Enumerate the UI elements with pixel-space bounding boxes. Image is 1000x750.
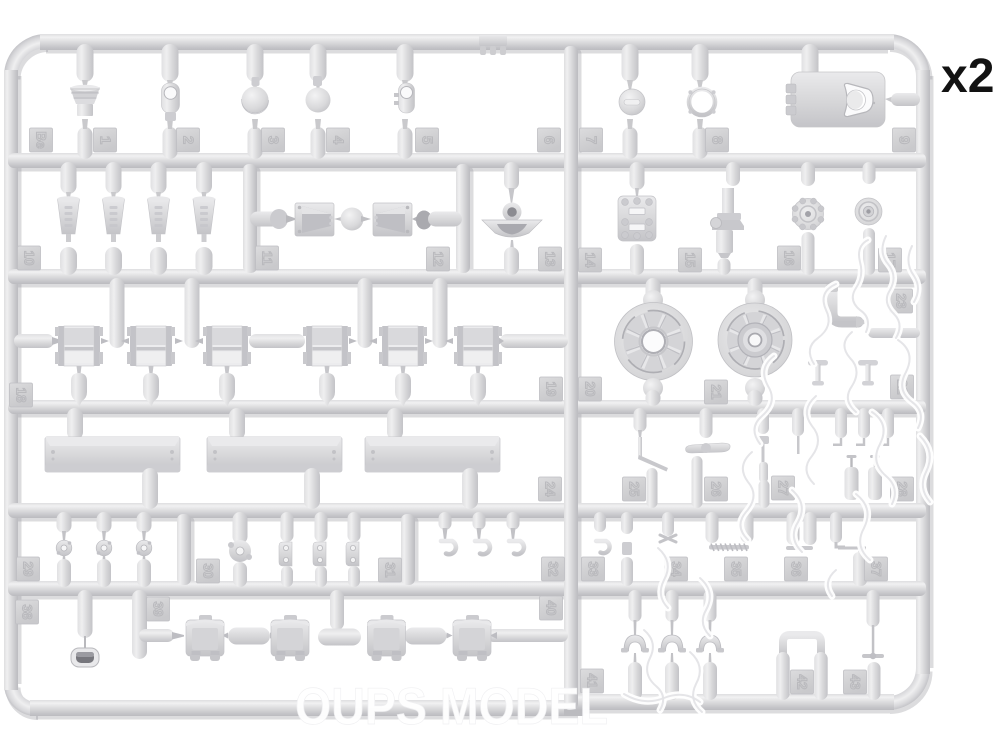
svg-text:6: 6	[541, 136, 558, 144]
svg-text:2: 2	[180, 136, 197, 144]
svg-text:OUPS MODEL: OUPS MODEL	[295, 678, 608, 736]
svg-text:11: 11	[260, 251, 275, 266]
svg-text:20: 20	[583, 381, 598, 396]
svg-text:1: 1	[97, 136, 114, 144]
svg-text:42: 42	[795, 674, 810, 689]
svg-text:8: 8	[709, 136, 726, 144]
svg-text:18: 18	[14, 387, 29, 403]
svg-text:15: 15	[683, 252, 698, 268]
svg-text:9: 9	[896, 136, 913, 144]
svg-text:10: 10	[22, 250, 37, 265]
svg-text:27: 27	[776, 480, 791, 495]
svg-text:x2: x2	[941, 50, 994, 103]
svg-text:21: 21	[709, 384, 724, 400]
svg-text:39: 39	[151, 601, 166, 616]
svg-text:7: 7	[583, 136, 600, 144]
svg-text:33: 33	[586, 561, 601, 577]
svg-text:38: 38	[20, 604, 35, 620]
svg-text:12: 12	[431, 251, 446, 266]
svg-text:Be: Be	[34, 131, 49, 149]
svg-text:40: 40	[544, 600, 559, 615]
svg-text:13: 13	[543, 251, 558, 267]
svg-text:24: 24	[543, 481, 558, 497]
svg-text:14: 14	[583, 252, 598, 268]
svg-text:35: 35	[729, 561, 744, 577]
svg-text:16: 16	[782, 250, 797, 266]
svg-text:29: 29	[21, 561, 36, 576]
svg-text:25: 25	[627, 481, 642, 497]
svg-text:30: 30	[201, 563, 216, 578]
svg-text:32: 32	[546, 561, 561, 576]
svg-text:4: 4	[330, 136, 347, 145]
svg-text:31: 31	[383, 562, 398, 578]
svg-text:3: 3	[265, 136, 282, 144]
svg-text:23: 23	[894, 293, 909, 309]
svg-text:36: 36	[789, 561, 804, 577]
svg-text:37: 37	[869, 561, 884, 576]
svg-text:26: 26	[709, 481, 724, 497]
svg-text:19: 19	[544, 381, 559, 396]
svg-text:43: 43	[848, 674, 863, 690]
svg-text:5: 5	[419, 136, 436, 144]
